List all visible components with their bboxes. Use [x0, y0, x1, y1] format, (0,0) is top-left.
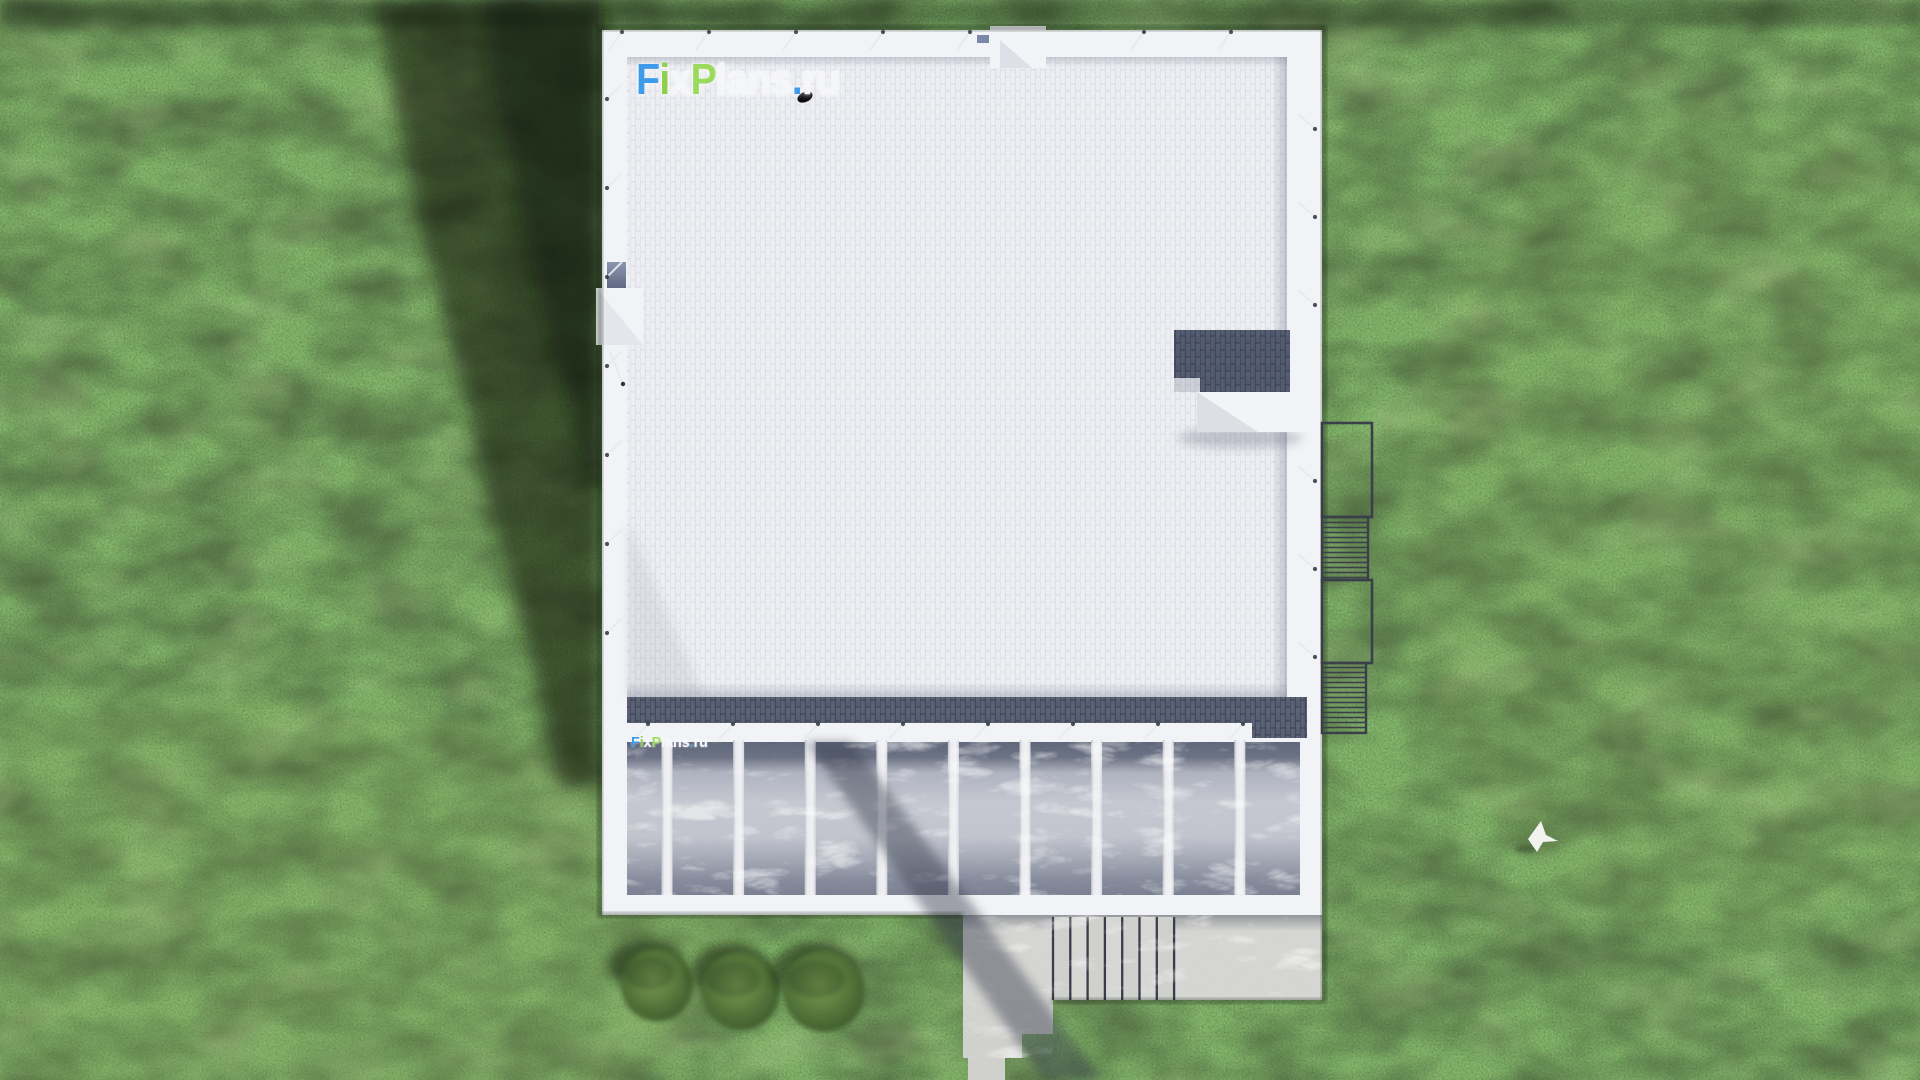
tick-bottom-dot	[1156, 722, 1160, 726]
logo-small-seg-ru: ru	[694, 734, 708, 751]
tick-right-dot	[1313, 215, 1317, 219]
pier-left-tick-dot	[621, 382, 625, 386]
stairwell-opening	[1174, 330, 1290, 392]
bush-inner-shade	[706, 961, 761, 996]
tick-right-dot	[1313, 303, 1317, 307]
tick-right-dot	[1313, 567, 1317, 571]
logo-seg-p: P	[691, 55, 717, 104]
bush-inner-shade	[624, 957, 674, 989]
tick-left-dot	[605, 364, 609, 368]
logo-seg-ru: ru	[802, 55, 840, 104]
floor-bottom-shade	[627, 682, 1287, 697]
tick-left-dot	[605, 97, 609, 101]
tick-right-dot	[1313, 479, 1317, 483]
tick-left-dot	[605, 275, 609, 279]
logo-seg-dot: .	[792, 55, 802, 104]
tick-top-dot	[968, 30, 972, 34]
tick-left-dot	[605, 453, 609, 457]
bushes	[609, 940, 865, 1032]
tick-bottom-dot	[901, 722, 905, 726]
logo-small-seg-f: F	[631, 734, 640, 751]
tick-top-dot	[620, 30, 624, 34]
tick-left-dot	[605, 542, 609, 546]
logo-seg-lans: lans	[716, 55, 792, 104]
watermark-logo-small: FixPlans.ru	[631, 735, 708, 750]
bottom-dark-corner	[1252, 697, 1307, 738]
tick-bottom-dot	[816, 722, 820, 726]
logo-seg-f: F	[636, 55, 659, 104]
logo-seg-i: i	[659, 55, 669, 104]
logo-small-seg-x: x	[644, 734, 652, 751]
watermark-logo: FixPlans.ru	[636, 58, 840, 102]
logo-small-seg-lans: lans	[661, 734, 690, 751]
railing-frame-4	[1322, 663, 1366, 733]
edge-top	[600, 26, 1324, 30]
tick-bottom-dot	[646, 722, 650, 726]
aerial-render-scene: FixPlans.ru FixPlans.ru	[0, 0, 1920, 1080]
walk-step-3	[968, 1058, 1005, 1080]
entry-canopy	[1178, 392, 1308, 448]
tick-top-dot	[1229, 30, 1233, 34]
logo-small-seg-p: P	[652, 734, 662, 751]
tick-top-dot	[794, 30, 798, 34]
top-edge-shade	[0, 0, 1920, 26]
tick-top-dot	[707, 30, 711, 34]
edge-left	[598, 27, 602, 917]
bush-inner-shade	[787, 961, 844, 998]
pier-top-mark	[977, 35, 989, 43]
bottom-dark-band	[627, 697, 1252, 723]
tick-right-dot	[1313, 655, 1317, 659]
tick-bottom-dot	[1241, 722, 1245, 726]
tick-left-dot	[605, 631, 609, 635]
stairwell-tint	[1174, 330, 1290, 392]
tick-top-dot	[881, 30, 885, 34]
render-graphic	[0, 0, 1920, 1080]
tick-right-dot	[1313, 127, 1317, 131]
edge-apron-bottom	[1052, 999, 1323, 1003]
tick-bottom-dot	[1071, 722, 1075, 726]
tick-bottom-dot	[986, 722, 990, 726]
tick-top-dot	[1142, 30, 1146, 34]
tick-bottom-dot	[731, 722, 735, 726]
logo-seg-x: x	[669, 55, 690, 104]
edge-terrace-bottom	[601, 913, 963, 917]
tick-left-dot	[605, 186, 609, 190]
railing-frame-2	[1322, 517, 1368, 580]
